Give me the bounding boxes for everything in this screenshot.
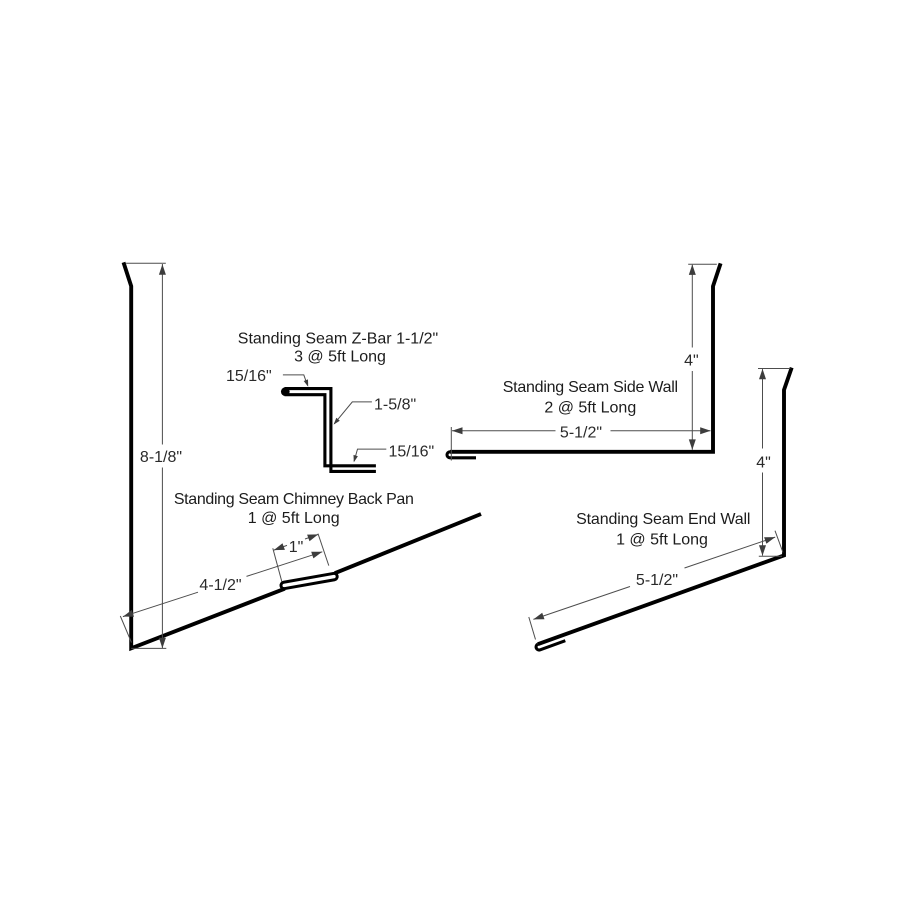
svg-text:1-5/8": 1-5/8" [374,396,416,413]
svg-text:15/16": 15/16" [226,368,272,385]
svg-text:5-1/2": 5-1/2" [636,572,678,589]
svg-text:4": 4" [684,353,699,370]
svg-text:8-1/8": 8-1/8" [140,449,182,466]
svg-text:Standing Seam Side Wall: Standing Seam Side Wall [503,379,678,396]
svg-text:1": 1" [289,539,304,556]
svg-text:1 @ 5ft Long: 1 @ 5ft Long [616,532,708,549]
svg-text:Standing Seam End Wall: Standing Seam End Wall [576,511,750,528]
svg-text:4-1/2": 4-1/2" [199,577,241,594]
svg-text:3 @ 5ft Long: 3 @ 5ft Long [294,348,386,365]
svg-text:2 @ 5ft Long: 2 @ 5ft Long [544,399,636,416]
svg-text:1 @ 5ft Long: 1 @ 5ft Long [248,510,340,527]
svg-text:5-1/2": 5-1/2" [560,425,602,442]
svg-text:4": 4" [756,454,771,471]
svg-text:Standing Seam Chimney Back Pan: Standing Seam Chimney Back Pan [174,491,414,508]
svg-text:15/16": 15/16" [389,444,435,461]
svg-text:Standing Seam Z-Bar 1-1/2": Standing Seam Z-Bar 1-1/2" [238,331,438,348]
